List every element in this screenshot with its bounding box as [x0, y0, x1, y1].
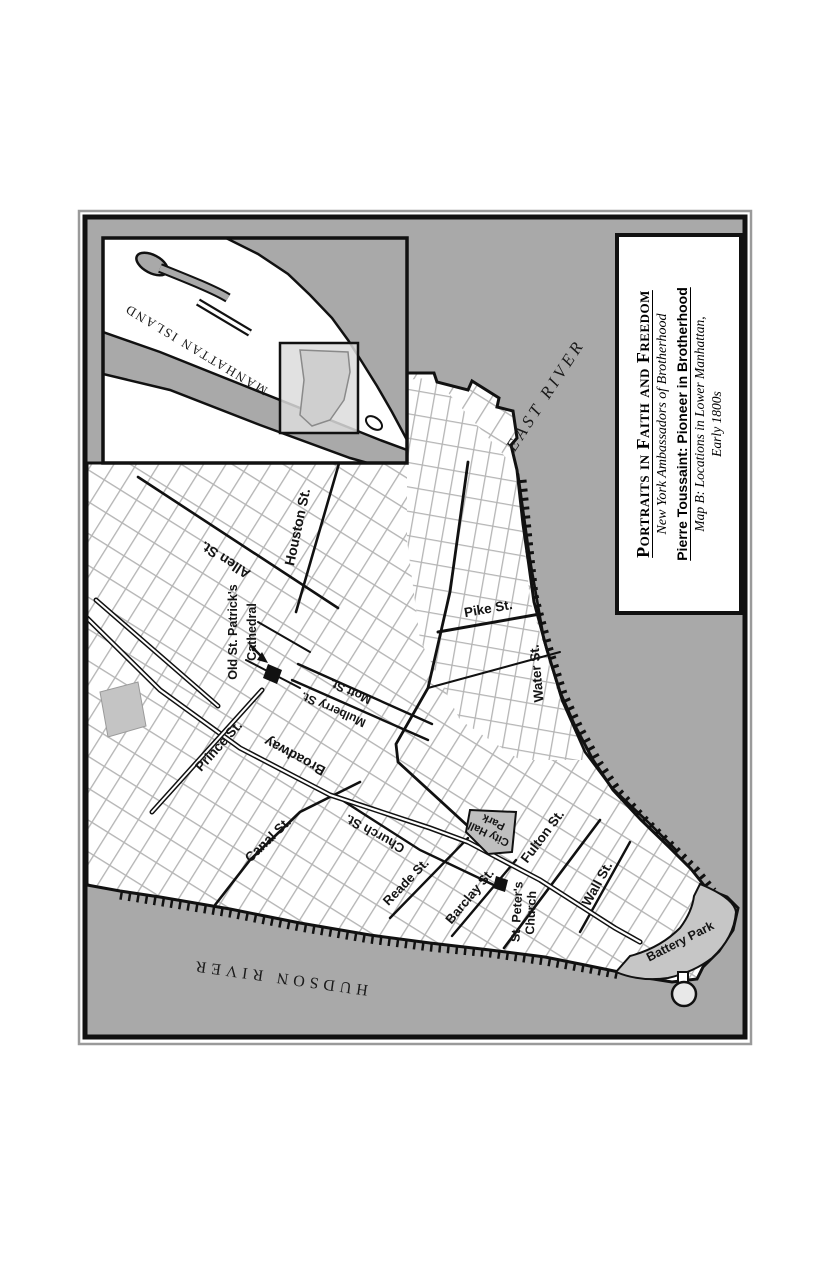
- old-st-patricks-label-line2: Cathedral: [245, 603, 259, 661]
- series-subtitle: New York Ambassadors of Brotherhood: [654, 314, 672, 535]
- inset-map: MANHATTAN ISLAND: [103, 238, 407, 474]
- st-peters-church-label-line2: Church: [523, 891, 539, 935]
- book-page: MANHATTAN ISLAND EAST RIVER HUDSON RIVER…: [0, 0, 825, 1275]
- map-illustration: MANHATTAN ISLAND EAST RIVER HUDSON RIVER…: [0, 0, 825, 1275]
- series-title: Portraits in Faith and Freedom: [633, 290, 654, 558]
- old-st-patricks-label-line1: Old St. Patrick's: [226, 584, 240, 679]
- book-title: Pierre Toussaint: Pioneer in Brotherhood: [673, 287, 691, 561]
- castle-fort: [672, 982, 696, 1006]
- map-caption-line2: Early 1800s: [709, 391, 725, 457]
- map-title-box: Portraits in Faith and Freedom New York …: [615, 233, 743, 615]
- map-caption-line1: Map B: Locations in Lower Manhattan,: [692, 316, 708, 531]
